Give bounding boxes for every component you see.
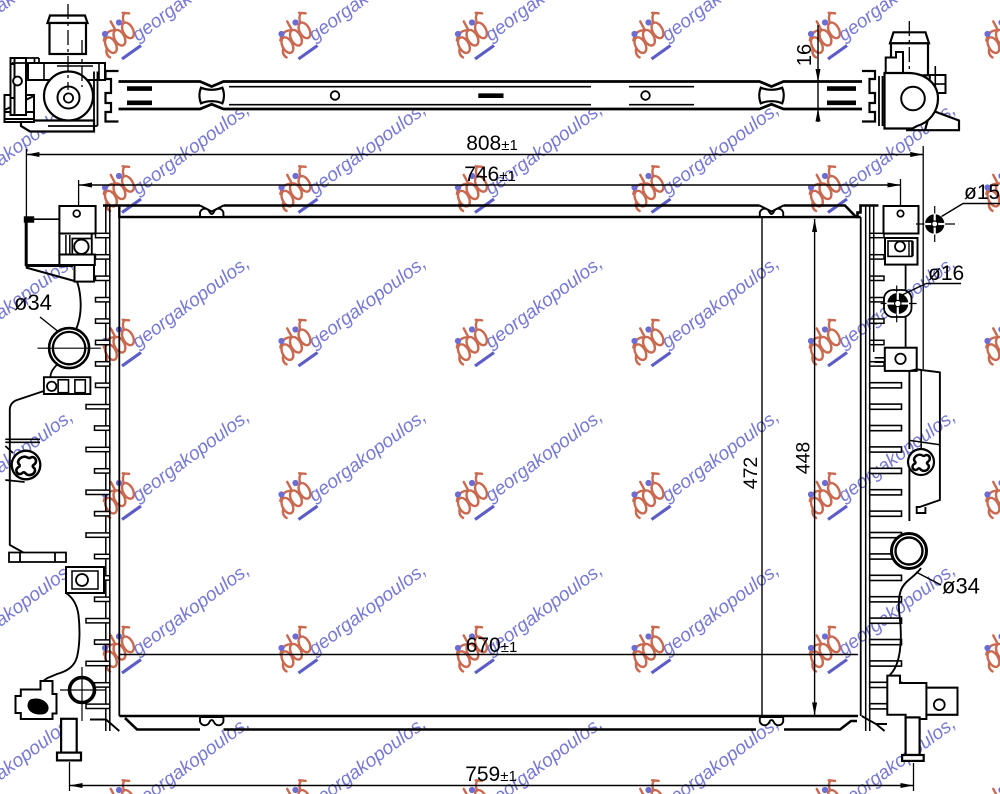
svg-text:472: 472	[740, 457, 762, 490]
svg-text:448: 448	[793, 442, 815, 475]
svg-text:ø34: ø34	[942, 574, 980, 599]
svg-text:16: 16	[794, 44, 816, 66]
svg-text:ø34: ø34	[14, 290, 52, 315]
svg-text:ø16: ø16	[928, 262, 964, 285]
svg-text:ø15: ø15	[964, 181, 1000, 204]
